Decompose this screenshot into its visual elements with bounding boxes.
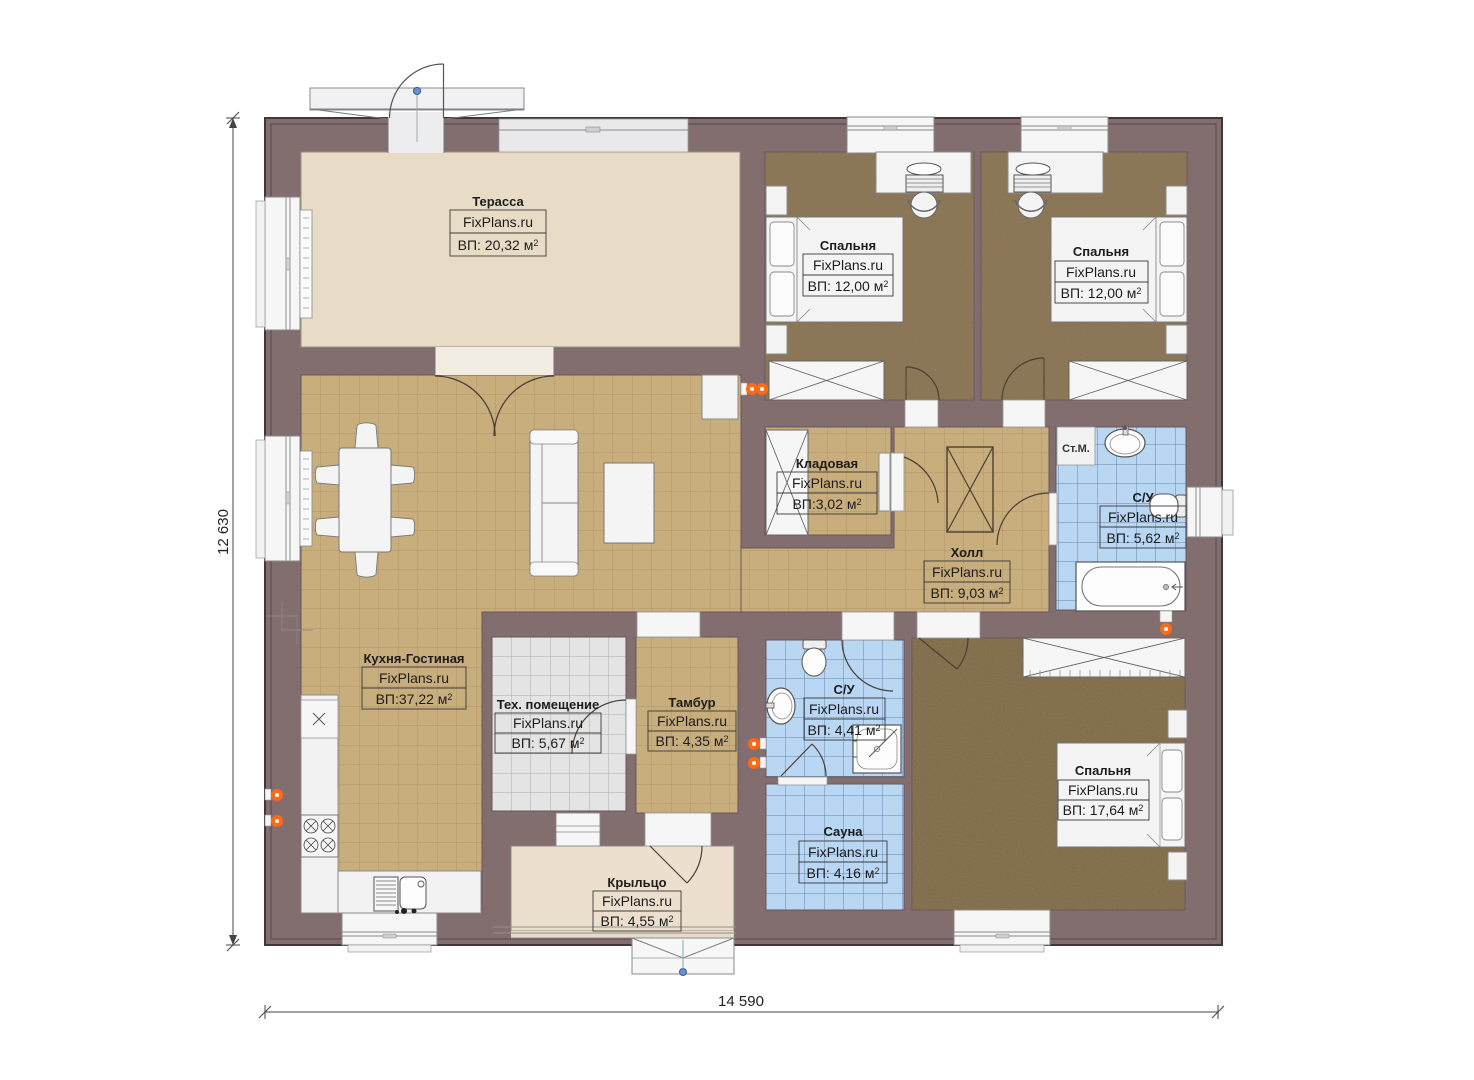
svg-text:ВП: 4,41 м2: ВП: 4,41 м2 xyxy=(808,722,881,738)
svg-text:ВП: 5,67 м2: ВП: 5,67 м2 xyxy=(512,735,585,751)
svg-text:ВП: 4,16 м2: ВП: 4,16 м2 xyxy=(807,865,880,881)
svg-text:Кухня-Гостиная: Кухня-Гостиная xyxy=(363,651,464,666)
svg-text:FixPlans.ru: FixPlans.ru xyxy=(1068,782,1138,798)
svg-text:FixPlans.ru: FixPlans.ru xyxy=(932,564,1002,580)
svg-text:ВП: 12,00 м2: ВП: 12,00 м2 xyxy=(808,278,889,294)
svg-text:FixPlans.ru: FixPlans.ru xyxy=(463,214,533,230)
svg-text:ВП:3,02 м2: ВП:3,02 м2 xyxy=(792,496,861,512)
svg-text:Спальня: Спальня xyxy=(820,238,876,253)
svg-text:Спальня: Спальня xyxy=(1073,244,1129,259)
svg-text:Кладовая: Кладовая xyxy=(796,456,858,471)
svg-text:FixPlans.ru: FixPlans.ru xyxy=(808,844,878,860)
svg-text:ВП: 20,32 м2: ВП: 20,32 м2 xyxy=(458,237,539,253)
svg-text:ВП: 12,00 м2: ВП: 12,00 м2 xyxy=(1061,285,1142,301)
svg-text:FixPlans.ru: FixPlans.ru xyxy=(1108,509,1178,525)
svg-text:FixPlans.ru: FixPlans.ru xyxy=(792,475,862,491)
svg-text:FixPlans.ru: FixPlans.ru xyxy=(813,257,883,273)
svg-text:ВП: 5,62 м2: ВП: 5,62 м2 xyxy=(1107,530,1180,546)
svg-text:С/У: С/У xyxy=(833,682,855,697)
svg-text:ВП: 9,03 м2: ВП: 9,03 м2 xyxy=(931,585,1004,601)
svg-text:Сауна: Сауна xyxy=(823,824,863,839)
svg-text:ВП: 4,55 м2: ВП: 4,55 м2 xyxy=(601,913,674,929)
svg-text:12 630: 12 630 xyxy=(215,509,232,555)
svg-text:14 590: 14 590 xyxy=(718,993,764,1010)
svg-text:Спальня: Спальня xyxy=(1075,763,1131,778)
svg-text:ВП: 4,35 м2: ВП: 4,35 м2 xyxy=(656,733,729,749)
svg-text:Ст.М.: Ст.М. xyxy=(1062,443,1090,455)
svg-text:ВП:37,22 м2: ВП:37,22 м2 xyxy=(376,691,453,707)
svg-text:FixPlans.ru: FixPlans.ru xyxy=(602,893,672,909)
svg-text:FixPlans.ru: FixPlans.ru xyxy=(657,713,727,729)
svg-text:Терасса: Терасса xyxy=(472,194,524,209)
svg-text:Крыльцо: Крыльцо xyxy=(607,875,666,890)
svg-text:FixPlans.ru: FixPlans.ru xyxy=(1066,264,1136,280)
svg-text:Тех. помещение: Тех. помещение xyxy=(497,697,600,712)
svg-text:ВП: 17,64 м2: ВП: 17,64 м2 xyxy=(1063,802,1144,818)
svg-text:FixPlans.ru: FixPlans.ru xyxy=(379,670,449,686)
svg-text:Тамбур: Тамбур xyxy=(668,695,715,710)
svg-text:Холл: Холл xyxy=(951,545,984,560)
svg-text:FixPlans.ru: FixPlans.ru xyxy=(809,701,879,717)
svg-text:FixPlans.ru: FixPlans.ru xyxy=(513,715,583,731)
svg-text:С/У: С/У xyxy=(1132,490,1154,505)
